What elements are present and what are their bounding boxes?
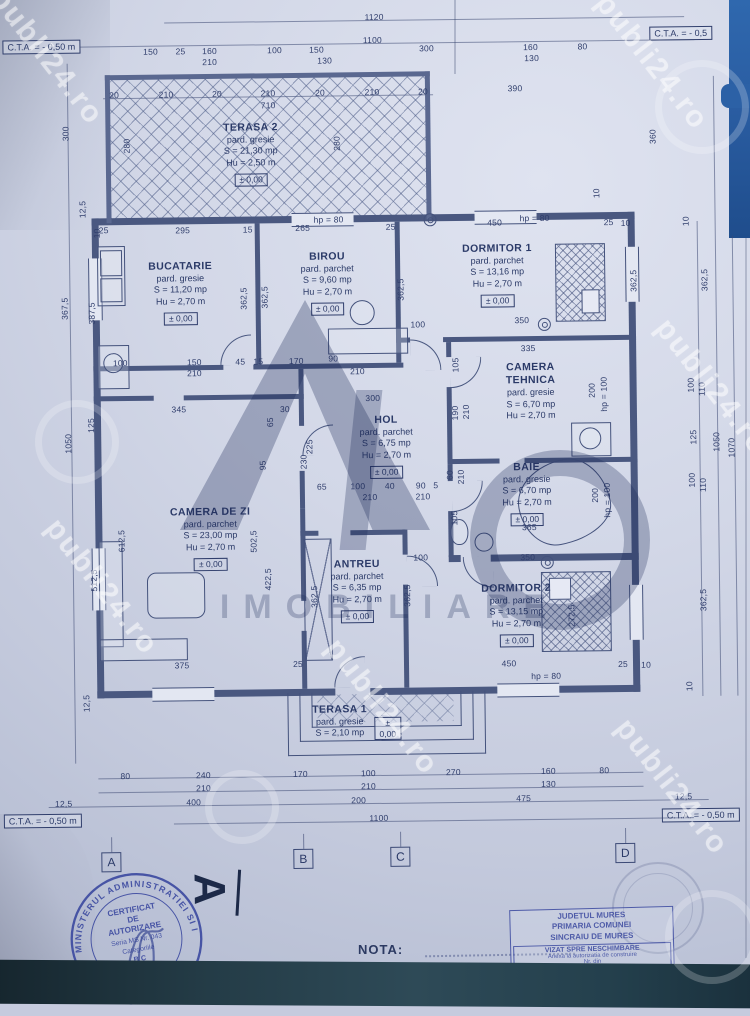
- room-name: CAMERA TEHNICA: [495, 361, 565, 388]
- room-info-line: pard. parchet: [481, 595, 551, 607]
- dimension-label: 90: [328, 353, 338, 363]
- room-info-line: Hu = 2,70 m: [502, 496, 551, 508]
- dimension-label: 60: [445, 470, 455, 480]
- dimension-label: 240: [196, 770, 211, 780]
- dimension-label: 170: [293, 769, 308, 779]
- dimension-label: 10: [681, 216, 691, 226]
- dimension-label: 210: [202, 57, 217, 67]
- dimension-label: 387,5: [87, 302, 97, 324]
- dimension-label: 20: [109, 90, 119, 100]
- dimension-label: 160: [541, 766, 556, 776]
- grid-letter-b: B: [293, 849, 313, 869]
- dimension-label: 80: [120, 771, 130, 781]
- dimension-label: 1100: [363, 35, 382, 45]
- dimension-label: 362,5: [628, 270, 638, 292]
- dimcirc-element: [541, 556, 554, 569]
- dimension-label: hp = 80: [520, 213, 550, 223]
- dimension-label: 25: [176, 46, 186, 56]
- dimension-label: 15: [253, 356, 263, 366]
- room-info-line: S = 21,30 mp: [223, 146, 278, 158]
- room-name: TERASA 2: [223, 121, 278, 135]
- room-name: DORMITOR 2: [481, 582, 551, 596]
- wall-element: [491, 553, 639, 562]
- cta-label-bottom-left: C.T.A. = - 0,50 m: [4, 814, 82, 829]
- dimension-label: 210: [361, 781, 376, 791]
- elevation-label: ± 0,00: [481, 294, 515, 307]
- dimension-label: 270: [446, 767, 461, 777]
- room-info-line: pard. parchet: [462, 255, 532, 267]
- dimension-label: 1120: [364, 12, 383, 22]
- dimension-label: 10: [92, 228, 102, 238]
- dimension-label: 210: [261, 88, 276, 98]
- dimension-label: 125: [688, 430, 698, 445]
- wall-element: [447, 387, 453, 462]
- grid-letter-c: C: [390, 847, 410, 867]
- dimension-label: 362,5: [238, 287, 248, 309]
- dimension-label: 100: [361, 768, 376, 778]
- elevation-label: ± 0,00: [311, 302, 345, 315]
- dimension-label: hp = 100: [602, 483, 612, 518]
- dimension-label: 150: [309, 45, 324, 55]
- dimension-label: 280: [332, 136, 342, 151]
- grid-letter-d: D: [615, 843, 635, 863]
- dimension-label: 200: [351, 795, 366, 805]
- dimension-label: 100: [350, 481, 365, 491]
- room-info-line: pard. parchet: [301, 263, 354, 275]
- room-name: BIROU: [300, 250, 353, 264]
- room-name: BUCATARIE: [148, 260, 212, 274]
- room-info-line: S = 9,60 mp: [301, 275, 354, 287]
- watermark-ring: [205, 770, 279, 844]
- dimension-label: 5: [433, 480, 438, 490]
- dimension-label: 272,5: [566, 604, 576, 626]
- win-element: [152, 687, 214, 702]
- dimension-label: 10: [591, 188, 601, 198]
- room-info-line: pard. parchet: [330, 571, 383, 583]
- dimension-label: 20: [212, 89, 222, 99]
- dimension-label: 350: [514, 315, 529, 325]
- dimension-label: 210: [416, 491, 431, 501]
- dimension-label: 25: [604, 217, 614, 227]
- dimension-label: 450: [487, 217, 502, 227]
- dimension-label: 160: [202, 46, 217, 56]
- dimcirc-element: [424, 213, 437, 226]
- dimension-label: 360: [647, 129, 657, 144]
- dimension-label: 150: [143, 47, 158, 57]
- dimension-label: 1100: [369, 813, 388, 823]
- dimension-label: 210: [350, 366, 365, 376]
- furn-element: [100, 250, 122, 276]
- room-info-line: Hu = 2,70 m: [482, 617, 552, 629]
- dimension-label: 230: [298, 454, 308, 469]
- dimension-label: 362,5: [259, 286, 269, 308]
- dimension-label: 150: [187, 357, 202, 367]
- dimension-label: 100: [113, 358, 128, 368]
- room-info-line: S = 6,35 mp: [330, 582, 383, 594]
- room-info-line: Hu = 2,50 m: [223, 157, 278, 169]
- wall-element: [443, 335, 636, 342]
- dimension-label: 25: [618, 659, 628, 669]
- wall-element: [94, 396, 154, 402]
- dimension-label: 210: [461, 404, 471, 419]
- dimension-label: 130: [317, 55, 332, 65]
- dimension-label: 210: [363, 492, 378, 502]
- wall-element: [184, 394, 304, 400]
- dimension-label: 100: [267, 45, 282, 55]
- wall-element: [253, 363, 403, 370]
- win-element: [629, 585, 644, 640]
- dimension-label: 130: [541, 779, 556, 789]
- dimension-label: 210: [159, 89, 174, 99]
- room-info-line: Hu = 2,70 m: [331, 594, 384, 606]
- dimension-label: 10: [641, 660, 651, 670]
- room-info-line: Hu = 2,70 m: [462, 278, 532, 290]
- dimension-label: 100: [413, 552, 428, 562]
- dimension-label: 170: [289, 356, 304, 366]
- vline-element: [732, 236, 739, 696]
- dimension-label: 345: [171, 404, 186, 414]
- dimension-label: 160: [523, 42, 538, 52]
- watermark-ring: [655, 60, 749, 154]
- furn-element: [147, 572, 206, 619]
- room-name: CAMERA DE ZI: [170, 506, 250, 520]
- dimension-label: 30: [280, 404, 290, 414]
- dimension-label: 12,5: [55, 799, 72, 809]
- wall-element: [402, 530, 407, 555]
- room-info-line: pard. gresie: [148, 273, 212, 285]
- dimension-label: 362,5: [402, 584, 412, 606]
- dimension-label: 110: [698, 478, 708, 492]
- win-element: [497, 683, 559, 698]
- elevation-label: ± 0,00: [510, 513, 544, 526]
- dimension-label: 80: [577, 41, 587, 51]
- dimension-label: 612,5: [116, 530, 126, 552]
- dimcirc-element: [538, 318, 551, 331]
- vline-element: [697, 221, 704, 696]
- dimension-label: 20: [418, 86, 428, 96]
- dimension-label: 422,5: [263, 568, 273, 590]
- room-info-line: S = 13,16 mp: [462, 266, 532, 278]
- dimension-label: 95: [258, 460, 268, 470]
- elevation-label: ± 0,00: [234, 173, 268, 186]
- wall-element: [300, 531, 318, 536]
- wall-element: [448, 458, 500, 464]
- dimension-label: 65: [317, 482, 327, 492]
- dimension-label: 210: [187, 368, 202, 378]
- hline-element: [49, 799, 709, 808]
- room-info-line: pard. parchet: [360, 427, 413, 439]
- dimension-label: 130: [524, 53, 539, 63]
- dimension-label: 710: [261, 100, 276, 110]
- room-label: DORMITOR 1pard. parchetS = 13,16 mpHu = …: [462, 242, 533, 310]
- room-label: CAMERA TEHNICApard. gresieS = 6,70 mpHu …: [495, 361, 566, 422]
- dimension-label: 20: [315, 88, 325, 98]
- room-info-line: Hu = 2,70 m: [360, 449, 413, 461]
- dimension-label: 10: [621, 218, 631, 228]
- furn-element: [549, 578, 571, 600]
- dimension-label: 280: [122, 139, 132, 154]
- dimension-label: 105: [449, 511, 459, 526]
- nota-label: NOTA:: [358, 942, 403, 957]
- dimension-label: 375: [175, 660, 190, 670]
- dimension-label: 200: [590, 488, 600, 503]
- room-label: BAIEpard. gresieS = 6,70 mpHu = 2,70 m± …: [502, 461, 552, 528]
- room-info-line: pard. gresie: [502, 474, 551, 486]
- dimension-label: 400: [186, 797, 201, 807]
- dimension-label: 1050: [711, 432, 721, 452]
- dimension-label: 105: [450, 358, 460, 373]
- dimension-label: 40: [385, 481, 395, 491]
- dimension-label: 362,5: [309, 586, 319, 608]
- room-label: TERASA 2pard. gresieS = 21,30 mpHu = 2,5…: [223, 121, 279, 189]
- dimension-label: 350: [520, 552, 535, 562]
- dimension-label: 65: [265, 417, 275, 427]
- dimension-label: hp = 80: [531, 671, 561, 681]
- municipality-stamp-header: JUDETUL MURESPRIMARIA COMUNEISINCRAIU DE…: [512, 909, 671, 944]
- room-info-line: Hu = 2,70 m: [301, 286, 354, 298]
- dimension-label: 362,5: [395, 278, 405, 300]
- room-info-line: S = 23,00 mp: [170, 530, 250, 542]
- room-info-line: S = 6,70 mp: [502, 485, 551, 497]
- section-marker-line: [235, 870, 241, 916]
- room-label: BUCATARIEpard. gresieS = 11,20 mpHu = 2,…: [148, 260, 213, 328]
- room-label: ANTREUpard. parchetS = 6,35 mpHu = 2,70 …: [330, 558, 384, 626]
- room-label: DORMITOR 2pard. parchetS = 13,15 mpHu = …: [481, 582, 552, 650]
- furn-element: [100, 278, 122, 302]
- dimension-label: 210: [456, 469, 466, 484]
- dimension-label: 475: [516, 793, 531, 803]
- arc-element: [410, 339, 441, 370]
- dimension-label: hp = 80: [314, 214, 344, 224]
- wall-element: [446, 342, 451, 357]
- dimension-label: 367,5: [60, 298, 70, 320]
- room-info-line: pard. gresie: [496, 387, 566, 399]
- wall-element: [350, 530, 405, 536]
- room-info-line: S = 11,20 mp: [148, 284, 212, 296]
- dimension-label: 335: [521, 343, 536, 353]
- elevation-label: ± 0,00: [164, 312, 198, 325]
- dimension-label: 190: [450, 406, 460, 421]
- dimension-label: 45: [235, 357, 245, 367]
- hline-element: [79, 39, 694, 48]
- room-info-line: Hu = 2,70 m: [496, 409, 566, 421]
- room-name: HOL: [359, 414, 412, 428]
- furn-element: [474, 533, 493, 552]
- elevation-label: ± 0,00: [194, 558, 228, 571]
- elevation-label: ± 0,00: [500, 634, 534, 647]
- room-info-line: S = 6,75 mp: [360, 438, 413, 450]
- dimension-label: 265: [295, 223, 310, 233]
- room-name: BAIE: [502, 461, 551, 475]
- dimension-label: 225: [304, 439, 314, 454]
- room-label: HOLpard. parchetS = 6,75 mpHu = 2,70 m± …: [359, 414, 413, 482]
- dimension-label: hp = 100: [599, 377, 609, 412]
- dimension-label: 15: [243, 224, 253, 234]
- room-label: BIROUpard. parchetS = 9,60 mpHu = 2,70 m…: [300, 250, 354, 318]
- wall-element: [300, 471, 305, 509]
- dimension-label: 390: [508, 83, 523, 93]
- room-info-line: Hu = 2,70 m: [149, 296, 213, 308]
- room-info-line: S = 6,70 mp: [496, 398, 566, 410]
- watermark-ring: [665, 890, 750, 984]
- dimension-label: 210: [365, 87, 380, 97]
- dimension-label: 25: [386, 222, 396, 232]
- room-info-line: pard. parchet: [170, 519, 250, 531]
- room-label: CAMERA DE ZIpard. parchetS = 23,00 mpHu …: [170, 506, 251, 574]
- arc-element: [452, 481, 483, 512]
- wall-element: [449, 555, 461, 562]
- room-name: DORMITOR 1: [462, 242, 532, 256]
- dimension-label: 12,5: [81, 695, 91, 712]
- dimension-label: 300: [365, 393, 380, 403]
- dimension-label: 100: [410, 319, 425, 329]
- dimension-label: 200: [587, 383, 597, 398]
- room-name: ANTREU: [330, 558, 383, 572]
- blueprint-sheet: C.T.A. = - 0,50 m C.T.A. = - 0,5 C.T.A. …: [0, 0, 750, 1005]
- dimension-label: 300: [60, 126, 70, 141]
- dimension-label: 300: [419, 43, 434, 53]
- furn-element: [581, 289, 599, 313]
- room-info-line: pard. gresie: [312, 716, 367, 728]
- elevation-label: ± 0,00: [370, 466, 404, 479]
- dimension-label: 90: [416, 480, 426, 490]
- room-info-line: Hu = 2,70 m: [170, 541, 250, 553]
- dimension-label: 362,5: [699, 269, 709, 291]
- furn-element: [328, 328, 408, 355]
- room-info-line: pard. gresie: [223, 134, 278, 146]
- dimension-label: 450: [502, 658, 517, 668]
- furn-element: [579, 427, 601, 449]
- room-info-line: S = 13,15 mp: [481, 606, 551, 618]
- room-info-line: S = 2,10 mp: [312, 727, 367, 739]
- dimension-label: 10: [684, 681, 694, 691]
- dimension-label: 25: [293, 659, 303, 669]
- dimension-label: 295: [175, 225, 190, 235]
- watermark-ring: [35, 400, 119, 484]
- dimension-label: 362,5: [698, 589, 708, 611]
- table-background: [0, 960, 750, 1009]
- dimension-label: 12,5: [77, 201, 87, 218]
- elevation-label: ± 0,00: [341, 610, 375, 623]
- dimension-label: 80: [599, 765, 609, 775]
- room-label: TERASA 1pard. gresieS = 2,10 mp± 0,00: [312, 703, 367, 739]
- dimension-label: 100: [687, 473, 697, 488]
